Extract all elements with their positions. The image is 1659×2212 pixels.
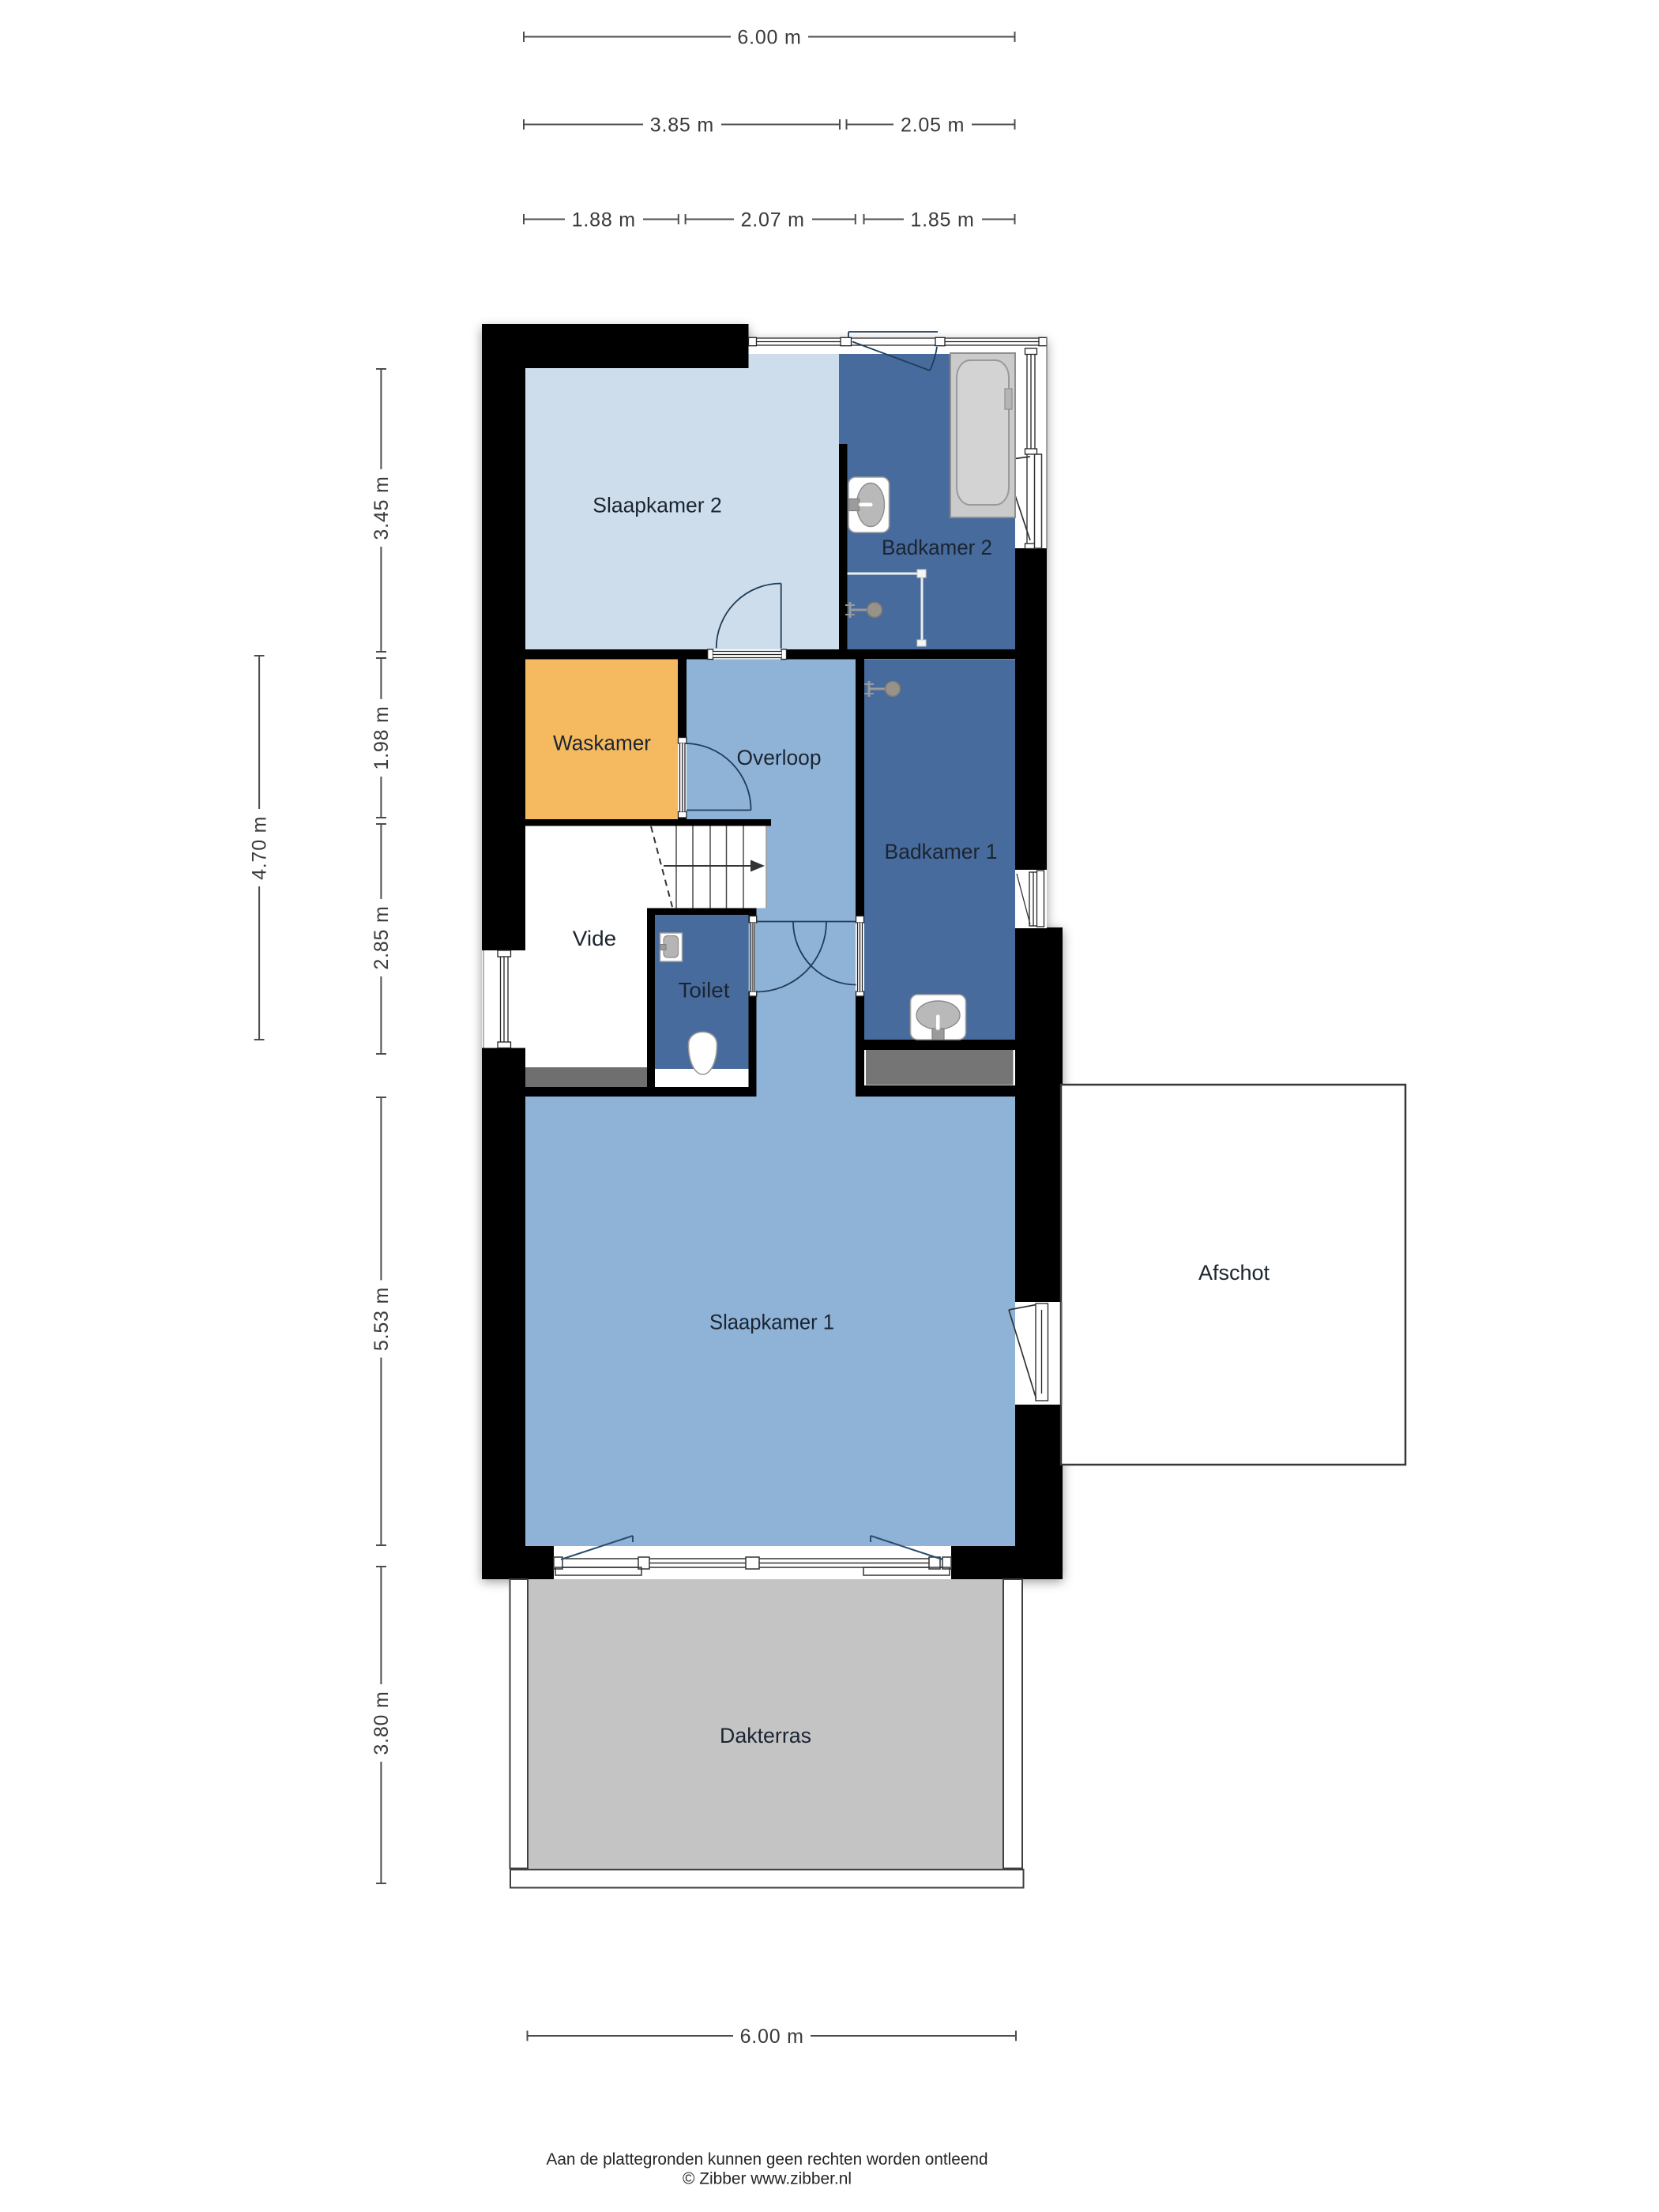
- svg-text:Badkamer 1: Badkamer 1: [885, 840, 998, 863]
- svg-text:Slaapkamer 1: Slaapkamer 1: [709, 1311, 834, 1334]
- svg-text:2.07 m: 2.07 m: [741, 209, 805, 231]
- svg-text:3.80 m: 3.80 m: [371, 1691, 393, 1755]
- svg-text:Afschot: Afschot: [1198, 1261, 1270, 1285]
- svg-text:1.85 m: 1.85 m: [910, 209, 974, 231]
- svg-text:3.85 m: 3.85 m: [650, 115, 714, 137]
- svg-text:1.88 m: 1.88 m: [572, 209, 636, 231]
- svg-text:Dakterras: Dakterras: [720, 1724, 811, 1747]
- svg-text:6.00 m: 6.00 m: [737, 27, 801, 49]
- svg-text:Waskamer: Waskamer: [553, 732, 651, 755]
- svg-text:Aan de plattegronden kunnen ge: Aan de plattegronden kunnen geen rechten…: [547, 2150, 988, 2169]
- svg-text:3.45 m: 3.45 m: [371, 476, 393, 540]
- svg-text:2.05 m: 2.05 m: [901, 115, 965, 137]
- svg-text:Toilet: Toilet: [679, 979, 731, 1003]
- svg-text:Overloop: Overloop: [737, 746, 822, 769]
- svg-text:Slaapkamer 2: Slaapkamer 2: [592, 494, 721, 517]
- svg-text:6.00 m: 6.00 m: [740, 2026, 804, 2048]
- svg-text:4.70 m: 4.70 m: [249, 816, 271, 880]
- svg-text:5.53 m: 5.53 m: [371, 1287, 393, 1351]
- svg-text:Badkamer 2: Badkamer 2: [882, 536, 992, 559]
- svg-text:2.85 m: 2.85 m: [371, 905, 393, 969]
- svg-text:Vide: Vide: [573, 927, 616, 950]
- svg-text:© Zibber www.zibber.nl: © Zibber www.zibber.nl: [683, 2169, 852, 2188]
- svg-text:1.98 m: 1.98 m: [371, 705, 393, 769]
